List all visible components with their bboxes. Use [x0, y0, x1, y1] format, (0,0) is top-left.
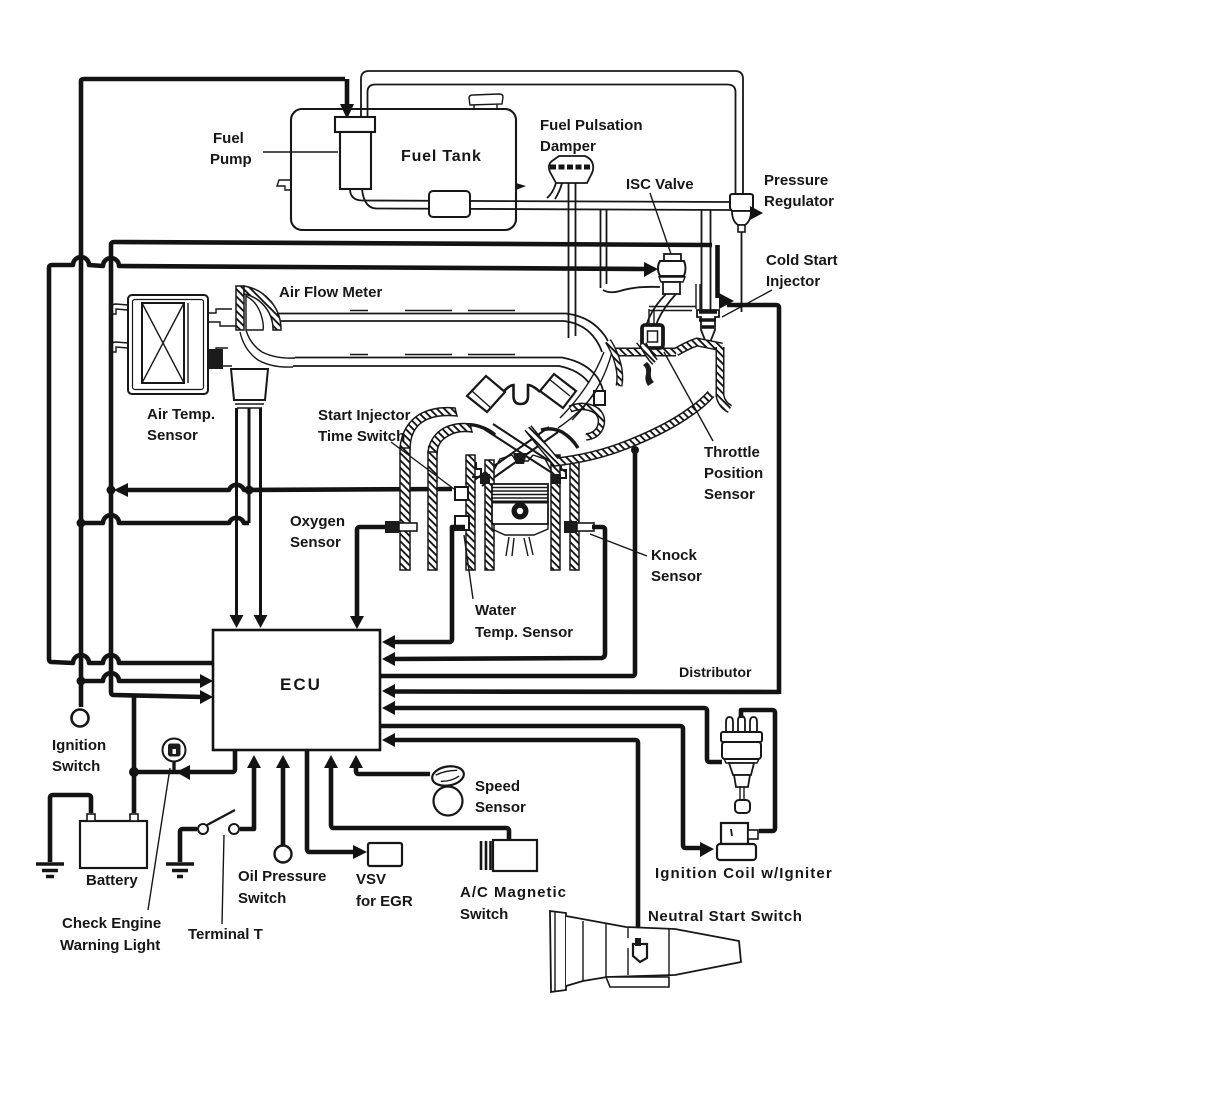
svg-text:Knock: Knock	[651, 547, 698, 564]
svg-text:Warning Light: Warning Light	[60, 937, 160, 954]
svg-text:Air Flow Meter: Air Flow Meter	[279, 284, 383, 301]
svg-text:Fuel: Fuel	[213, 130, 244, 147]
svg-text:Neutral Start Switch: Neutral Start Switch	[648, 908, 803, 925]
svg-text:for EGR: for EGR	[356, 893, 413, 910]
svg-text:Ignition: Ignition	[52, 737, 106, 754]
svg-text:Sensor: Sensor	[290, 534, 341, 551]
svg-text:VSV: VSV	[356, 871, 386, 888]
svg-text:ECU: ECU	[280, 675, 322, 694]
svg-text:Battery: Battery	[86, 872, 138, 889]
svg-text:Oil Pressure: Oil Pressure	[238, 868, 326, 885]
svg-text:Position: Position	[704, 465, 763, 482]
svg-text:Pump: Pump	[210, 151, 252, 168]
svg-text:Injector: Injector	[766, 273, 820, 290]
svg-text:Temp. Sensor: Temp. Sensor	[475, 624, 573, 641]
svg-text:Water: Water	[475, 602, 516, 619]
svg-text:Sensor: Sensor	[475, 799, 526, 816]
svg-text:Start Injector: Start Injector	[318, 407, 411, 424]
svg-text:Cold Start: Cold Start	[766, 252, 838, 269]
svg-text:Switch: Switch	[460, 906, 508, 923]
svg-text:Sensor: Sensor	[147, 427, 198, 444]
svg-text:Throttle: Throttle	[704, 444, 760, 461]
svg-text:Speed: Speed	[475, 778, 520, 795]
svg-text:Fuel Tank: Fuel Tank	[401, 148, 482, 165]
svg-text:Switch: Switch	[52, 758, 100, 775]
svg-text:Fuel Pulsation: Fuel Pulsation	[540, 117, 643, 134]
svg-text:Pressure: Pressure	[764, 172, 828, 189]
svg-text:Switch: Switch	[238, 890, 286, 907]
svg-text:A/C Magnetic: A/C Magnetic	[460, 884, 567, 901]
svg-text:ISC Valve: ISC Valve	[626, 176, 694, 193]
svg-text:Distributor: Distributor	[679, 665, 752, 681]
svg-text:Sensor: Sensor	[704, 486, 755, 503]
svg-text:Time Switch: Time Switch	[318, 428, 405, 445]
svg-text:Ignition Coil w/Igniter: Ignition Coil w/Igniter	[655, 865, 833, 882]
svg-text:Sensor: Sensor	[651, 568, 702, 585]
svg-text:Check Engine: Check Engine	[62, 915, 161, 932]
svg-text:Regulator: Regulator	[764, 193, 834, 210]
svg-text:Terminal T: Terminal T	[188, 926, 263, 943]
svg-text:Damper: Damper	[540, 138, 596, 155]
svg-text:Oxygen: Oxygen	[290, 513, 345, 530]
svg-text:Air Temp.: Air Temp.	[147, 406, 215, 423]
